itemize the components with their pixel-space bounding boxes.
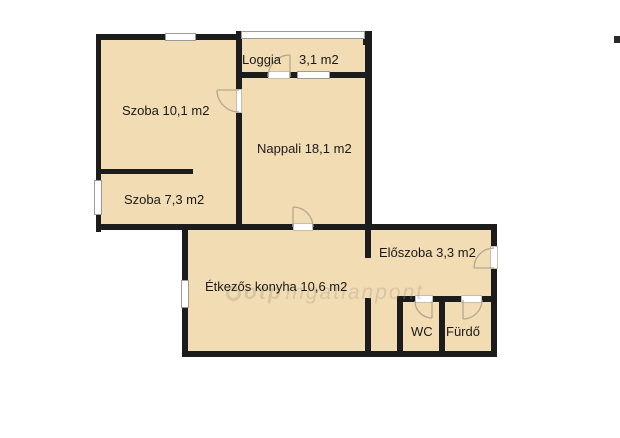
room-label-eloszoba: Előszoba 3,3 m2 <box>379 245 476 260</box>
room-label-loggia-area: 3,1 m2 <box>299 52 339 67</box>
door-arc-nappali <box>293 207 313 227</box>
room-label-loggia: Loggia <box>242 52 281 67</box>
door-arc-entrance <box>474 248 494 268</box>
room-label-furdo: Fürdő <box>446 324 480 339</box>
room-label-wc: WC <box>411 324 433 339</box>
floorplan-canvas: Szoba 10,1 m2 Szoba 7,3 m2 Loggia 3,1 m2… <box>0 0 620 438</box>
room-label-szoba2: Szoba 7,3 m2 <box>124 192 204 207</box>
room-label-konyha: Étkezős konyha 10,6 m2 <box>205 279 347 294</box>
room-label-szoba1: Szoba 10,1 m2 <box>122 103 209 118</box>
door-arc-szoba1 <box>217 90 239 112</box>
room-label-nappali: Nappali 18,1 m2 <box>257 141 352 156</box>
door-arc-furdo <box>463 300 482 319</box>
